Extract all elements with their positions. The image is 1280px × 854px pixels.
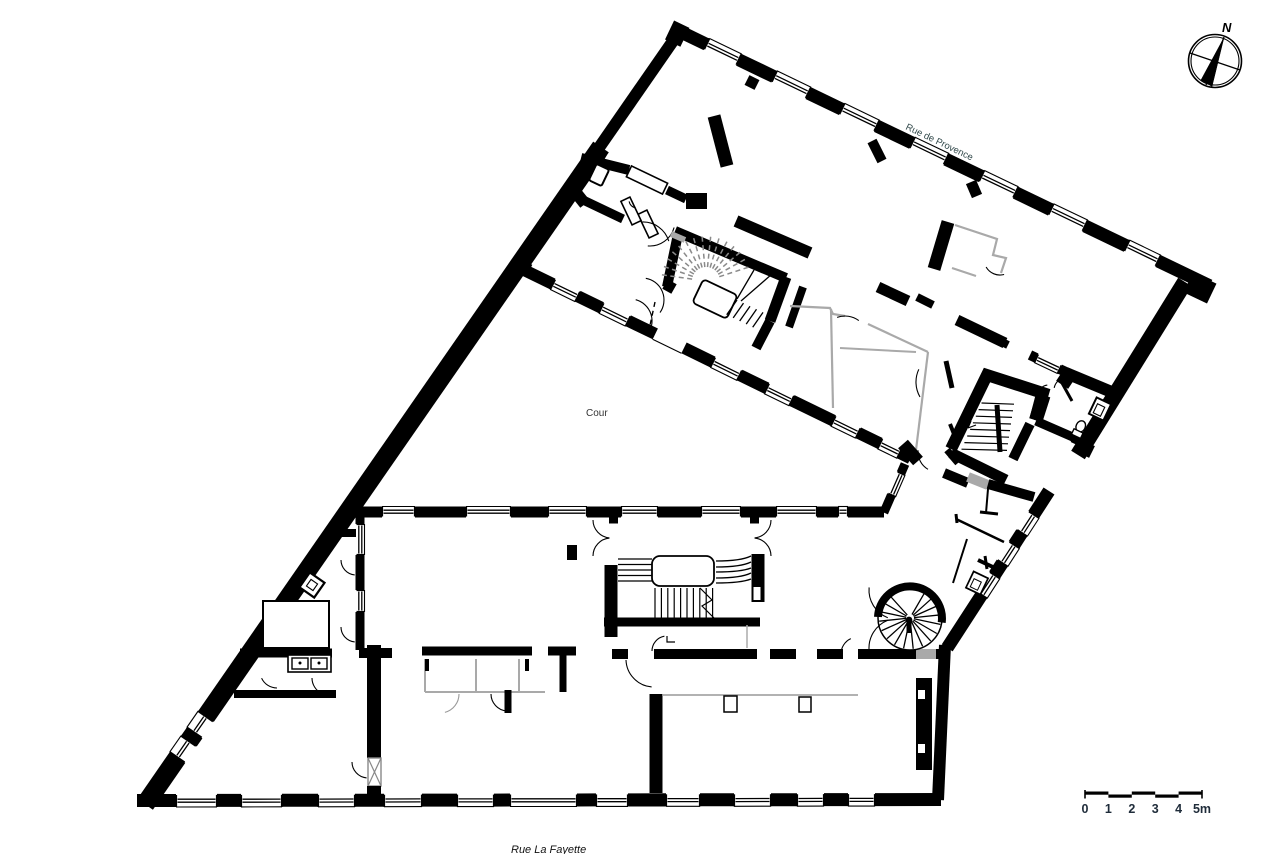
svg-text:4: 4 [1175,802,1182,816]
svg-text:Rue La Fayette: Rue La Fayette [511,844,586,854]
svg-text:0: 0 [1082,802,1089,816]
svg-text:Cour: Cour [586,408,608,419]
svg-text:2: 2 [1128,802,1135,816]
svg-text:N: N [1222,20,1232,35]
svg-text:3: 3 [1152,802,1159,816]
svg-text:5m: 5m [1193,802,1211,816]
svg-text:1: 1 [1105,802,1112,816]
